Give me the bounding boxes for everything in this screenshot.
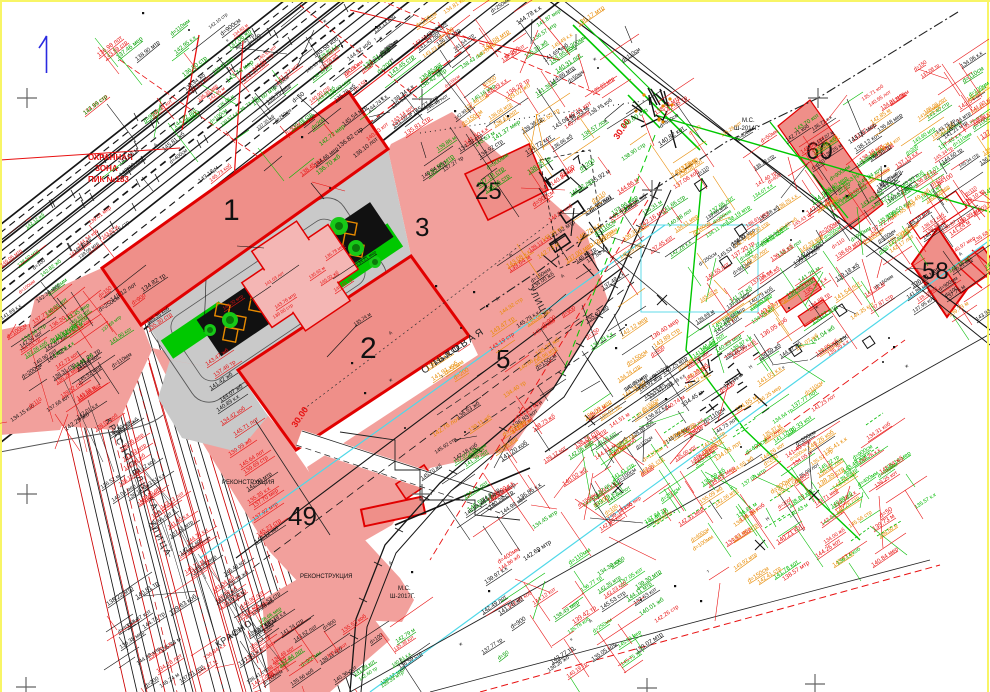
- svg-text:РЕКОНСТРУКЦИЯ: РЕКОНСТРУКЦИЯ: [300, 574, 353, 580]
- svg-text:1: 1: [223, 194, 240, 227]
- svg-text:М.С.: М.С.: [742, 118, 755, 124]
- svg-text:2: 2: [360, 332, 377, 365]
- svg-text:Ш-2017Г.: Ш-2017Г.: [390, 594, 415, 600]
- svg-text:М.С.: М.С.: [398, 586, 411, 592]
- svg-text:3: 3: [415, 212, 429, 242]
- svg-text:49: 49: [288, 501, 317, 531]
